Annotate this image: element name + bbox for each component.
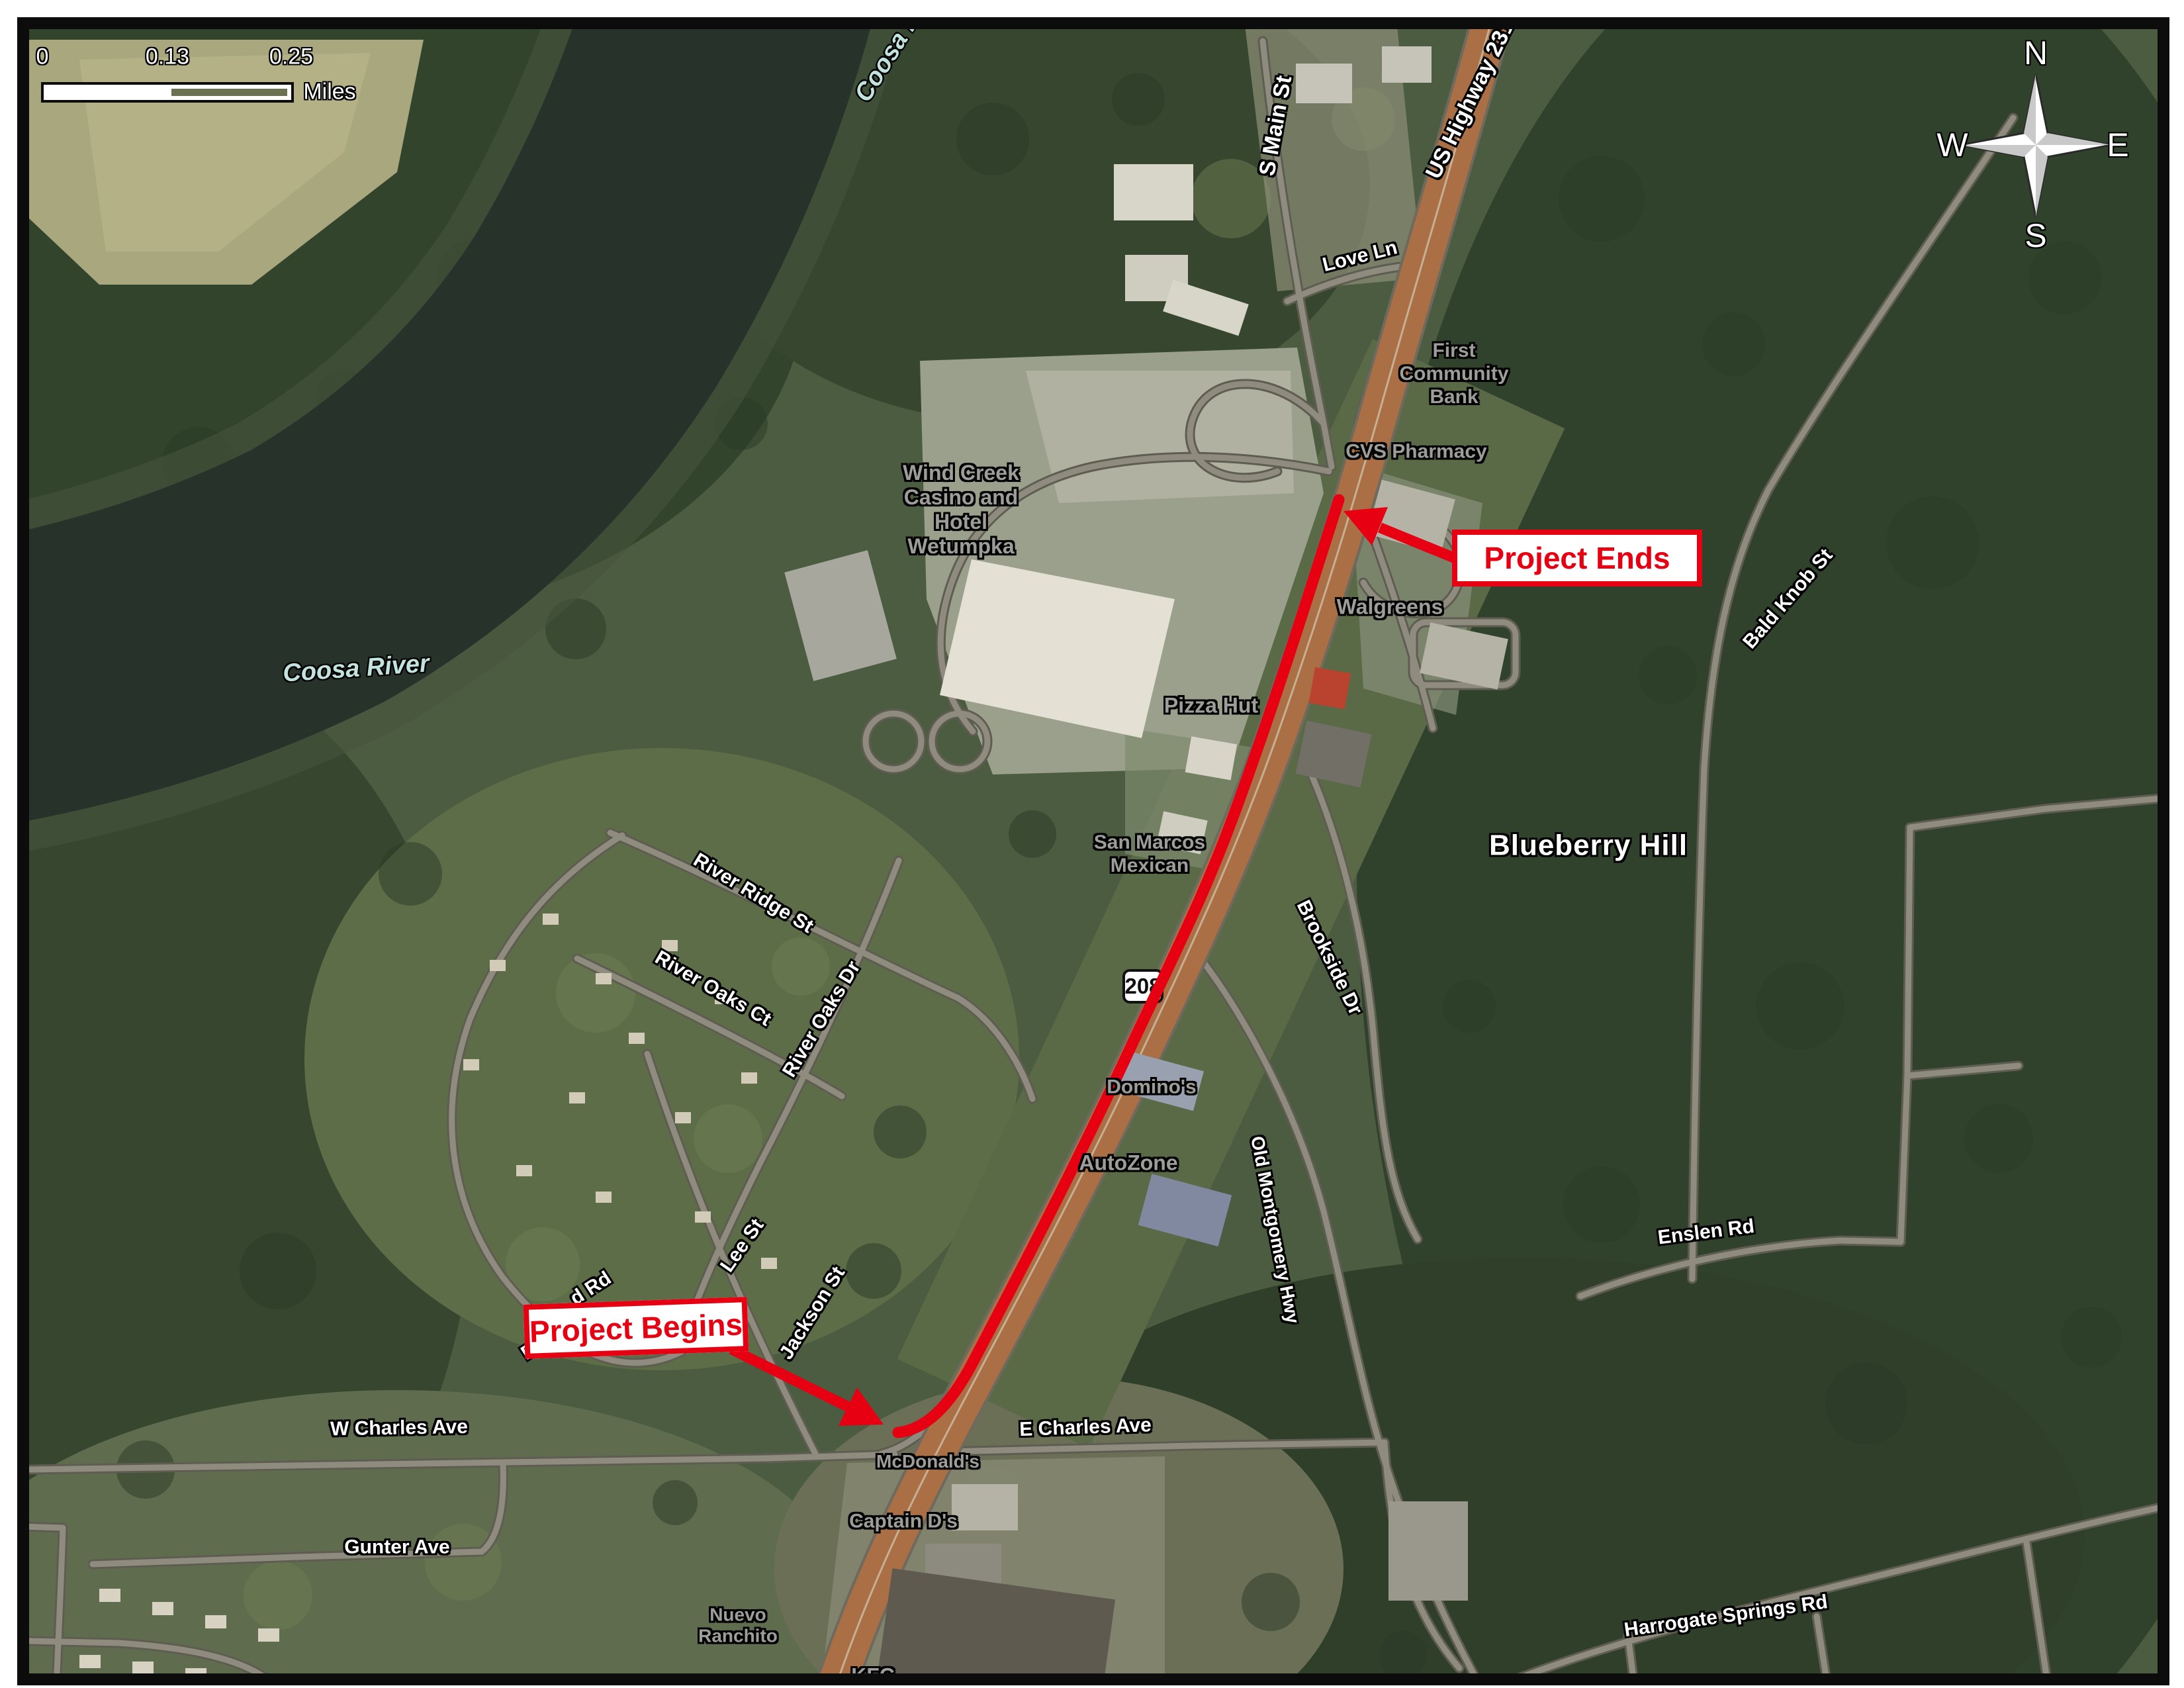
road-label-gunter-ave: Gunter Ave (344, 1536, 449, 1560)
poi-label-nuevo-ranchito: Nuevo Ranchito (698, 1605, 778, 1648)
poi-label-dominos: Domino's (1107, 1076, 1196, 1100)
compass-west-label: W (1936, 126, 1968, 164)
place-label-blueberry-hill: Blueberry Hill (1489, 828, 1688, 862)
poi-label-autozone: AutoZone (1079, 1150, 1177, 1175)
map-screenshot: 208 (0, 0, 2184, 1688)
poi-label-walgreens: Walgreens (1337, 594, 1443, 619)
road-label-e-charles-ave: E Charles Ave (1019, 1414, 1152, 1442)
poi-label-san-marcos-mexican: San Marcos Mexican (1094, 831, 1205, 878)
scale-unit: Miles (303, 79, 355, 105)
scale-bar (41, 82, 294, 103)
poi-label-captain-ds: Captain D's (849, 1511, 958, 1534)
project-begins-callout: Project Begins (523, 1297, 749, 1359)
scale-tick-mid: 0.13 (146, 44, 189, 70)
compass-north-label: N (2024, 34, 2048, 72)
poi-label-wind-creek-casino: Wind Creek Casino and Hotel Wetumpka (903, 461, 1019, 559)
scale-tick-max: 0.25 (269, 44, 313, 70)
poi-label-pizza-hut: Pizza Hut (1164, 693, 1258, 718)
poi-label-mcdonalds: McDonald's (876, 1451, 979, 1472)
poi-label-kfc: KFC (851, 1664, 895, 1673)
map-canvas: 208 (29, 29, 2158, 1673)
scale-tick-0: 0 (36, 44, 49, 70)
road-label-w-charles-ave: W Charles Ave (330, 1416, 468, 1441)
compass-east-label: E (2107, 126, 2128, 164)
poi-label-cvs-pharmacy: CVS Pharmacy (1345, 441, 1486, 464)
compass-south-label: S (2025, 216, 2046, 255)
map-viewport: 208 (29, 29, 2158, 1673)
poi-label-first-community-bank: First Community Bank (1400, 340, 1509, 408)
project-ends-callout: Project Ends (1452, 530, 1702, 586)
